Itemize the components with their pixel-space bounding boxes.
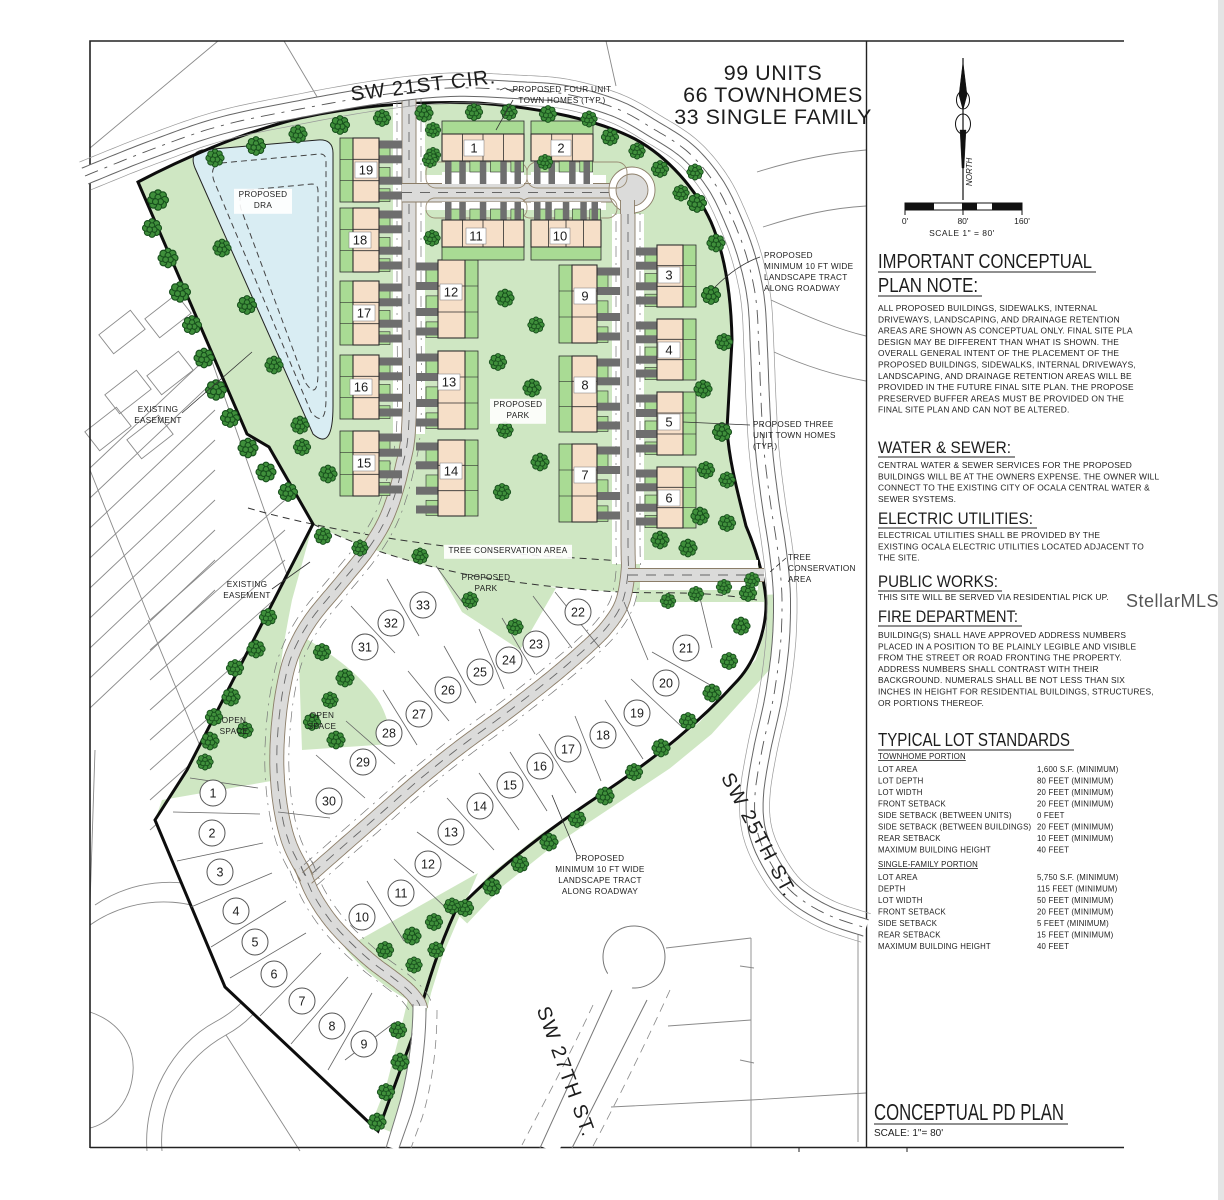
svg-text:LANDSCAPING, AND DRAINAGE RETE: LANDSCAPING, AND DRAINAGE RETENTION AREA… bbox=[878, 371, 1132, 381]
svg-text:(TYP.): (TYP.) bbox=[753, 442, 777, 451]
svg-text:30: 30 bbox=[322, 795, 336, 809]
svg-text:9: 9 bbox=[361, 1038, 368, 1052]
svg-text:3: 3 bbox=[217, 866, 224, 880]
svg-text:PARK: PARK bbox=[475, 584, 498, 593]
svg-text:MAXIMUM BUILDING HEIGHT: MAXIMUM BUILDING HEIGHT bbox=[878, 846, 991, 855]
svg-text:19: 19 bbox=[630, 707, 644, 721]
svg-text:15: 15 bbox=[357, 456, 371, 471]
svg-text:20 FEET (MINIMUM): 20 FEET (MINIMUM) bbox=[1037, 788, 1114, 797]
svg-text:2: 2 bbox=[209, 827, 216, 841]
svg-text:FRONT SETBACK: FRONT SETBACK bbox=[878, 800, 946, 809]
svg-text:5: 5 bbox=[665, 415, 672, 430]
svg-text:StellarMLS: StellarMLS bbox=[1126, 591, 1219, 611]
svg-text:AREAS ARE SHOWN AS CONCEPTUAL: AREAS ARE SHOWN AS CONCEPTUAL ONLY. FINA… bbox=[878, 326, 1133, 336]
svg-text:UNIT TOWN HOMES: UNIT TOWN HOMES bbox=[753, 431, 836, 440]
svg-text:DEPTH: DEPTH bbox=[878, 885, 905, 894]
svg-text:17: 17 bbox=[357, 306, 371, 321]
svg-text:20 FEET (MINIMUM): 20 FEET (MINIMUM) bbox=[1037, 823, 1114, 832]
svg-text:REAR SETBACK: REAR SETBACK bbox=[878, 931, 941, 940]
svg-text:32: 32 bbox=[384, 617, 398, 631]
svg-text:40 FEET: 40 FEET bbox=[1037, 942, 1069, 951]
svg-text:CENTRAL WATER & SEWER SERVICES: CENTRAL WATER & SEWER SERVICES FOR THE P… bbox=[878, 460, 1132, 470]
svg-text:33: 33 bbox=[416, 599, 430, 613]
svg-text:OR PORTIONS THEREOF.: OR PORTIONS THEREOF. bbox=[878, 698, 984, 708]
svg-text:11: 11 bbox=[395, 887, 408, 901]
svg-text:5: 5 bbox=[252, 936, 259, 950]
svg-text:20 FEET (MINIMUM): 20 FEET (MINIMUM) bbox=[1037, 908, 1114, 917]
svg-text:14: 14 bbox=[444, 464, 458, 479]
svg-text:ELECTRIC UTILITIES:: ELECTRIC UTILITIES: bbox=[878, 509, 1033, 528]
svg-text:3: 3 bbox=[665, 268, 672, 283]
svg-text:THIS SITE WILL BE SERVED VIA R: THIS SITE WILL BE SERVED VIA RESIDENTIAL… bbox=[878, 592, 1109, 602]
svg-text:EASEMENT: EASEMENT bbox=[223, 591, 270, 600]
svg-text:6: 6 bbox=[271, 968, 278, 982]
svg-text:23: 23 bbox=[529, 638, 543, 652]
svg-text:PROPOSED: PROPOSED bbox=[462, 573, 511, 582]
svg-text:PROPOSED: PROPOSED bbox=[764, 251, 813, 260]
svg-text:7: 7 bbox=[581, 468, 588, 483]
svg-text:0 FEET: 0 FEET bbox=[1037, 811, 1065, 820]
svg-text:LANDSCAPE TRACT: LANDSCAPE TRACT bbox=[558, 876, 642, 885]
svg-text:17: 17 bbox=[561, 743, 575, 757]
svg-text:SIDE SETBACK (BETWEEN BUILDING: SIDE SETBACK (BETWEEN BUILDINGS) bbox=[878, 823, 1031, 832]
svg-text:FIRE DEPARTMENT:: FIRE DEPARTMENT: bbox=[878, 607, 1018, 626]
svg-text:4: 4 bbox=[233, 905, 240, 919]
svg-text:MINIMUM 10 FT WIDE: MINIMUM 10 FT WIDE bbox=[555, 865, 645, 874]
svg-text:21: 21 bbox=[679, 642, 693, 656]
svg-text:OPEN: OPEN bbox=[222, 716, 246, 725]
svg-text:FINAL SITE PLAN AND CAN NOT BE: FINAL SITE PLAN AND CAN NOT BE ALTERED. bbox=[878, 405, 1069, 415]
svg-text:2: 2 bbox=[557, 141, 564, 156]
svg-text:24: 24 bbox=[502, 654, 516, 668]
svg-text:PROPOSED: PROPOSED bbox=[576, 854, 625, 863]
svg-text:AREA: AREA bbox=[788, 575, 812, 584]
svg-text:5 FEET (MINIMUM): 5 FEET (MINIMUM) bbox=[1037, 919, 1109, 928]
svg-text:PROPOSED THREE: PROPOSED THREE bbox=[753, 420, 834, 429]
svg-text:BUILDINGS WILL BE AT THE OWNER: BUILDINGS WILL BE AT THE OWNERS EXPENSE.… bbox=[878, 471, 1160, 481]
svg-text:7: 7 bbox=[299, 995, 306, 1009]
svg-text:TREE: TREE bbox=[788, 553, 811, 562]
svg-text:NORTH: NORTH bbox=[965, 157, 974, 186]
svg-text:22: 22 bbox=[571, 606, 585, 620]
svg-text:ALONG ROADWAY: ALONG ROADWAY bbox=[764, 284, 840, 293]
svg-text:20: 20 bbox=[659, 677, 673, 691]
svg-text:15 FEET (MINIMUM): 15 FEET (MINIMUM) bbox=[1037, 931, 1114, 940]
svg-text:27: 27 bbox=[412, 708, 426, 722]
svg-text:PRESERVED BUFFER AREAS MUST BE: PRESERVED BUFFER AREAS MUST BE PROVIDED … bbox=[878, 393, 1124, 403]
svg-text:PLAN NOTE:: PLAN NOTE: bbox=[878, 275, 978, 297]
svg-text:MAXIMUM BUILDING HEIGHT: MAXIMUM BUILDING HEIGHT bbox=[878, 942, 991, 951]
svg-text:DESIGN MAY BE DIFFERENT THAN W: DESIGN MAY BE DIFFERENT THAN WHAT IS SHO… bbox=[878, 337, 1119, 347]
svg-text:BACKGROUND. NUMERALS SHALL BE: BACKGROUND. NUMERALS SHALL BE NOT LESS T… bbox=[878, 675, 1125, 685]
svg-text:16: 16 bbox=[354, 380, 368, 395]
svg-text:PUBLIC WORKS:: PUBLIC WORKS: bbox=[878, 572, 998, 591]
svg-text:SPACE: SPACE bbox=[220, 727, 249, 736]
svg-text:11: 11 bbox=[469, 229, 483, 244]
svg-text:PROPOSED BUILDINGS, SIDEWALKS,: PROPOSED BUILDINGS, SIDEWALKS, INTERNAL … bbox=[878, 360, 1136, 370]
svg-text:SINGLE-FAMILY PORTION: SINGLE-FAMILY PORTION bbox=[878, 860, 978, 869]
svg-text:CONCEPTUAL PD PLAN: CONCEPTUAL PD PLAN bbox=[874, 1099, 1064, 1125]
svg-text:16: 16 bbox=[533, 760, 547, 774]
svg-text:10: 10 bbox=[355, 911, 369, 925]
svg-text:66 TOWNHOMES: 66 TOWNHOMES bbox=[683, 83, 863, 107]
svg-text:DRIVEWAYS, LANDSCAPING, AND DR: DRIVEWAYS, LANDSCAPING, AND DRAINAGE RET… bbox=[878, 314, 1120, 324]
svg-text:5,750 S.F. (MINIMUM): 5,750 S.F. (MINIMUM) bbox=[1037, 873, 1119, 882]
svg-text:14: 14 bbox=[473, 800, 487, 814]
svg-text:TOWN HOMES (TYP.): TOWN HOMES (TYP.) bbox=[518, 96, 605, 105]
svg-text:19: 19 bbox=[359, 163, 373, 178]
svg-text:FROM THE STREET OR ROAD FRONTI: FROM THE STREET OR ROAD FRONTING THE PRO… bbox=[878, 653, 1122, 663]
svg-text:LOT DEPTH: LOT DEPTH bbox=[878, 777, 923, 786]
svg-text:CONSERVATION: CONSERVATION bbox=[788, 564, 856, 573]
svg-text:29: 29 bbox=[356, 756, 370, 770]
svg-text:50 FEET (MINIMUM): 50 FEET (MINIMUM) bbox=[1037, 896, 1114, 905]
svg-text:LANDSCAPE TRACT: LANDSCAPE TRACT bbox=[764, 273, 848, 282]
svg-text:12: 12 bbox=[421, 858, 435, 872]
svg-text:13: 13 bbox=[444, 826, 458, 840]
svg-text:13: 13 bbox=[442, 375, 456, 390]
svg-text:25: 25 bbox=[473, 666, 487, 680]
svg-text:ADDRESS NUMBERS SHALL CONTRAST: ADDRESS NUMBERS SHALL CONTRAST WITH THEI… bbox=[878, 664, 1099, 674]
svg-text:1: 1 bbox=[210, 787, 217, 801]
svg-text:18: 18 bbox=[353, 233, 367, 248]
svg-text:18: 18 bbox=[596, 729, 610, 743]
svg-text:9: 9 bbox=[581, 289, 588, 304]
svg-text:ELECTRICAL UTILITIES SHALL BE: ELECTRICAL UTILITIES SHALL BE PROVIDED B… bbox=[878, 530, 1100, 540]
svg-text:BUILDING(S) SHALL HAVE APPROVE: BUILDING(S) SHALL HAVE APPROVED ADDRESS … bbox=[878, 630, 1126, 640]
svg-text:20 FEET (MINIMUM): 20 FEET (MINIMUM) bbox=[1037, 800, 1114, 809]
svg-text:40 FEET: 40 FEET bbox=[1037, 846, 1069, 855]
svg-text:SIDE SETBACK: SIDE SETBACK bbox=[878, 919, 938, 928]
svg-text:SEWER SYSTEMS.: SEWER SYSTEMS. bbox=[878, 494, 956, 504]
svg-text:TYPICAL LOT STANDARDS: TYPICAL LOT STANDARDS bbox=[878, 730, 1070, 750]
svg-text:PLACED IN A POSITION TO BE PLA: PLACED IN A POSITION TO BE PLAINLY LEGIB… bbox=[878, 641, 1136, 651]
svg-text:PARK: PARK bbox=[507, 411, 530, 420]
svg-text:ALONG ROADWAY: ALONG ROADWAY bbox=[562, 887, 638, 896]
svg-text:TOWNHOME PORTION: TOWNHOME PORTION bbox=[878, 752, 966, 761]
svg-text:1: 1 bbox=[470, 141, 477, 156]
svg-text:INCHES IN HEIGHT FOR RESIDENTI: INCHES IN HEIGHT FOR RESIDENTIAL BUILDIN… bbox=[878, 687, 1154, 697]
svg-text:80 FEET (MINIMUM): 80 FEET (MINIMUM) bbox=[1037, 777, 1114, 786]
svg-text:EASEMENT: EASEMENT bbox=[134, 416, 181, 425]
svg-text:DRA: DRA bbox=[254, 201, 272, 210]
svg-text:REAR SETBACK: REAR SETBACK bbox=[878, 834, 941, 843]
svg-text:8: 8 bbox=[581, 378, 588, 393]
svg-text:PROVIDED IN THE FUTURE FINAL S: PROVIDED IN THE FUTURE FINAL SITE PLAN. … bbox=[878, 382, 1134, 392]
svg-text:THE SITE.: THE SITE. bbox=[878, 553, 920, 563]
svg-text:LOT WIDTH: LOT WIDTH bbox=[878, 788, 923, 797]
svg-text:FRONT SETBACK: FRONT SETBACK bbox=[878, 908, 946, 917]
svg-text:SIDE SETBACK (BETWEEN UNITS): SIDE SETBACK (BETWEEN UNITS) bbox=[878, 811, 1012, 820]
svg-text:SCALE: 1"= 80': SCALE: 1"= 80' bbox=[874, 1128, 943, 1139]
svg-text:OVERALL GENERAL INTENT OF THE: OVERALL GENERAL INTENT OF THE PLACEMENT … bbox=[878, 348, 1119, 358]
svg-text:80': 80' bbox=[957, 216, 968, 226]
svg-text:10 FEET (MINIMUM): 10 FEET (MINIMUM) bbox=[1037, 834, 1114, 843]
svg-text:12: 12 bbox=[444, 285, 458, 300]
svg-text:ALL PROPOSED BUILDINGS, SIDEWA: ALL PROPOSED BUILDINGS, SIDEWALKS, INTER… bbox=[878, 303, 1098, 313]
svg-text:0': 0' bbox=[902, 216, 909, 226]
svg-text:8: 8 bbox=[329, 1020, 336, 1034]
svg-text:SPACE: SPACE bbox=[308, 722, 337, 731]
svg-text:1,600 S.F. (MINIMUM): 1,600 S.F. (MINIMUM) bbox=[1037, 765, 1119, 774]
svg-text:115 FEET (MINIMUM): 115 FEET (MINIMUM) bbox=[1037, 885, 1118, 894]
svg-text:28: 28 bbox=[382, 727, 396, 741]
svg-text:LOT WIDTH: LOT WIDTH bbox=[878, 896, 923, 905]
svg-text:15: 15 bbox=[503, 779, 517, 793]
svg-text:CONNECT TO THE EXISTING CITY O: CONNECT TO THE EXISTING CITY OF OCALA CE… bbox=[878, 483, 1150, 493]
svg-text:160': 160' bbox=[1014, 216, 1030, 226]
svg-text:TREE CONSERVATION AREA: TREE CONSERVATION AREA bbox=[449, 546, 568, 555]
svg-text:4: 4 bbox=[665, 343, 672, 358]
svg-text:LOT AREA: LOT AREA bbox=[878, 873, 918, 882]
svg-text:OPEN: OPEN bbox=[310, 711, 334, 720]
svg-text:MINIMUM 10 FT WIDE: MINIMUM 10 FT WIDE bbox=[764, 262, 854, 271]
svg-text:EXISTING OCALA ELECTRIC UTILIT: EXISTING OCALA ELECTRIC UTILITIES LOCATE… bbox=[878, 541, 1144, 551]
svg-text:PROPOSED FOUR UNIT: PROPOSED FOUR UNIT bbox=[513, 85, 612, 94]
svg-text:EXISTING: EXISTING bbox=[138, 405, 179, 414]
svg-text:IMPORTANT CONCEPTUAL: IMPORTANT CONCEPTUAL bbox=[878, 251, 1092, 273]
svg-text:99 UNITS: 99 UNITS bbox=[724, 61, 822, 85]
svg-text:31: 31 bbox=[358, 641, 372, 655]
svg-text:LOT AREA: LOT AREA bbox=[878, 765, 918, 774]
svg-text:33 SINGLE FAMILY: 33 SINGLE FAMILY bbox=[674, 105, 872, 129]
svg-text:PROPOSED: PROPOSED bbox=[494, 400, 543, 409]
svg-text:PROPOSED: PROPOSED bbox=[239, 190, 288, 199]
svg-text:6: 6 bbox=[665, 491, 672, 506]
svg-text:WATER & SEWER:: WATER & SEWER: bbox=[878, 438, 1011, 457]
svg-text:EXISTING: EXISTING bbox=[227, 580, 268, 589]
svg-text:10: 10 bbox=[553, 229, 567, 244]
svg-text:SCALE 1" = 80': SCALE 1" = 80' bbox=[929, 228, 995, 238]
svg-text:26: 26 bbox=[441, 684, 455, 698]
